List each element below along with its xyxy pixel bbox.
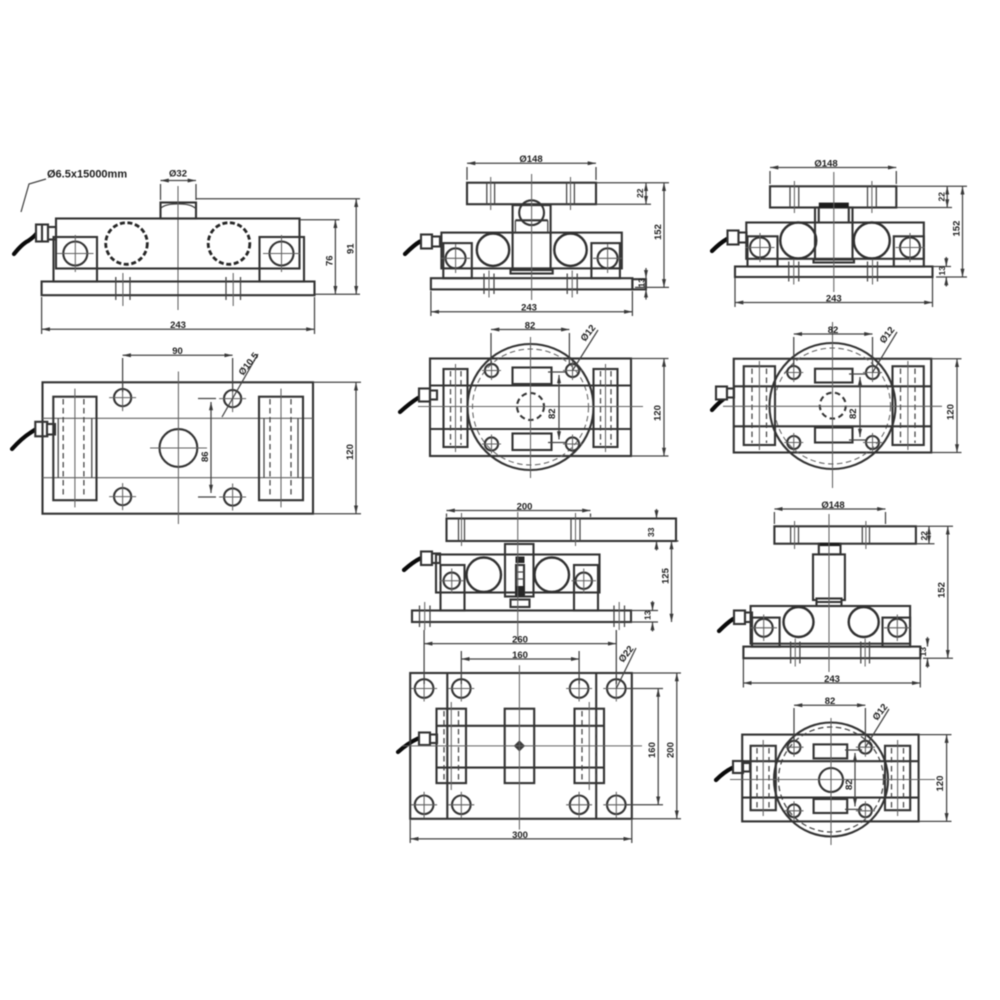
svg-text:120: 120 (653, 405, 664, 421)
svg-text:13: 13 (643, 610, 653, 620)
svg-text:125: 125 (661, 567, 672, 584)
svg-text:260: 260 (512, 635, 528, 646)
svg-text:22: 22 (937, 192, 947, 202)
svg-text:90: 90 (172, 346, 183, 357)
svg-text:243: 243 (824, 674, 840, 685)
svg-text:160: 160 (512, 650, 528, 661)
svg-text:82: 82 (825, 696, 836, 707)
svg-text:Ø32: Ø32 (169, 169, 187, 180)
svg-text:Ø6.5x15000mm: Ø6.5x15000mm (47, 169, 127, 181)
svg-text:22: 22 (635, 188, 645, 198)
svg-text:22: 22 (919, 531, 929, 541)
svg-text:120: 120 (946, 404, 957, 420)
svg-text:13: 13 (637, 278, 647, 288)
svg-text:86: 86 (200, 451, 211, 462)
svg-text:152: 152 (653, 224, 664, 240)
svg-text:243: 243 (521, 303, 537, 314)
svg-text:82: 82 (844, 779, 855, 790)
svg-text:82: 82 (547, 408, 558, 419)
svg-text:82: 82 (848, 408, 859, 419)
svg-text:Ø148: Ø148 (519, 154, 542, 165)
svg-text:200: 200 (666, 742, 677, 758)
svg-text:82: 82 (828, 325, 839, 336)
svg-text:243: 243 (826, 294, 842, 305)
svg-text:120: 120 (345, 444, 356, 460)
svg-text:13: 13 (937, 266, 947, 276)
svg-text:33: 33 (646, 527, 656, 537)
svg-text:91: 91 (346, 243, 357, 254)
svg-text:300: 300 (512, 830, 528, 841)
svg-text:243: 243 (170, 320, 186, 331)
svg-text:200: 200 (517, 501, 533, 512)
svg-text:Ø148: Ø148 (821, 500, 844, 511)
svg-text:152: 152 (937, 582, 948, 598)
svg-text:76: 76 (325, 255, 336, 266)
svg-text:120: 120 (935, 776, 946, 792)
svg-text:Ø148: Ø148 (814, 158, 837, 169)
svg-text:160: 160 (647, 742, 658, 758)
svg-text:152: 152 (952, 221, 963, 237)
svg-text:13: 13 (918, 647, 928, 657)
svg-text:82: 82 (525, 320, 536, 331)
